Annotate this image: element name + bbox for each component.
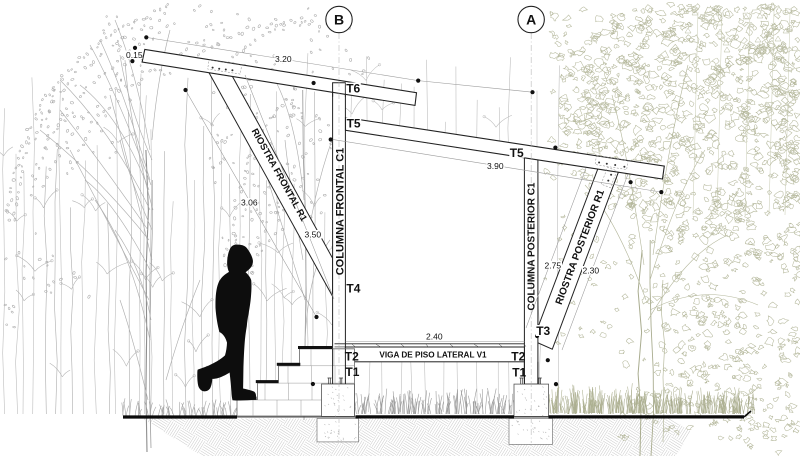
svg-text:2.30: 2.30 <box>583 266 600 276</box>
svg-text:3.90: 3.90 <box>487 161 504 171</box>
svg-text:2.40: 2.40 <box>426 332 443 342</box>
svg-text:T6: T6 <box>346 82 360 96</box>
svg-text:T1: T1 <box>512 366 526 380</box>
svg-text:T2: T2 <box>345 350 359 364</box>
svg-text:B: B <box>334 12 344 28</box>
svg-text:3.50: 3.50 <box>305 230 322 240</box>
svg-text:T1: T1 <box>345 365 359 379</box>
svg-text:COLUMNA POSTERIOR C1: COLUMNA POSTERIOR C1 <box>527 182 538 310</box>
svg-text:COLUMNA FRONTAL C1: COLUMNA FRONTAL C1 <box>334 148 346 276</box>
svg-text:T4: T4 <box>346 281 360 295</box>
svg-text:T5: T5 <box>510 146 524 160</box>
svg-text:3.20: 3.20 <box>275 54 292 64</box>
svg-text:0.15: 0.15 <box>126 50 143 60</box>
svg-text:VIGA DE PISO LATERAL V1: VIGA DE PISO LATERAL V1 <box>379 350 487 359</box>
svg-text:A: A <box>526 12 536 28</box>
svg-text:T5: T5 <box>347 116 361 130</box>
svg-text:T2: T2 <box>511 350 525 364</box>
svg-text:2.75: 2.75 <box>545 260 562 270</box>
svg-text:T3: T3 <box>536 324 550 338</box>
svg-text:3.06: 3.06 <box>241 198 258 208</box>
